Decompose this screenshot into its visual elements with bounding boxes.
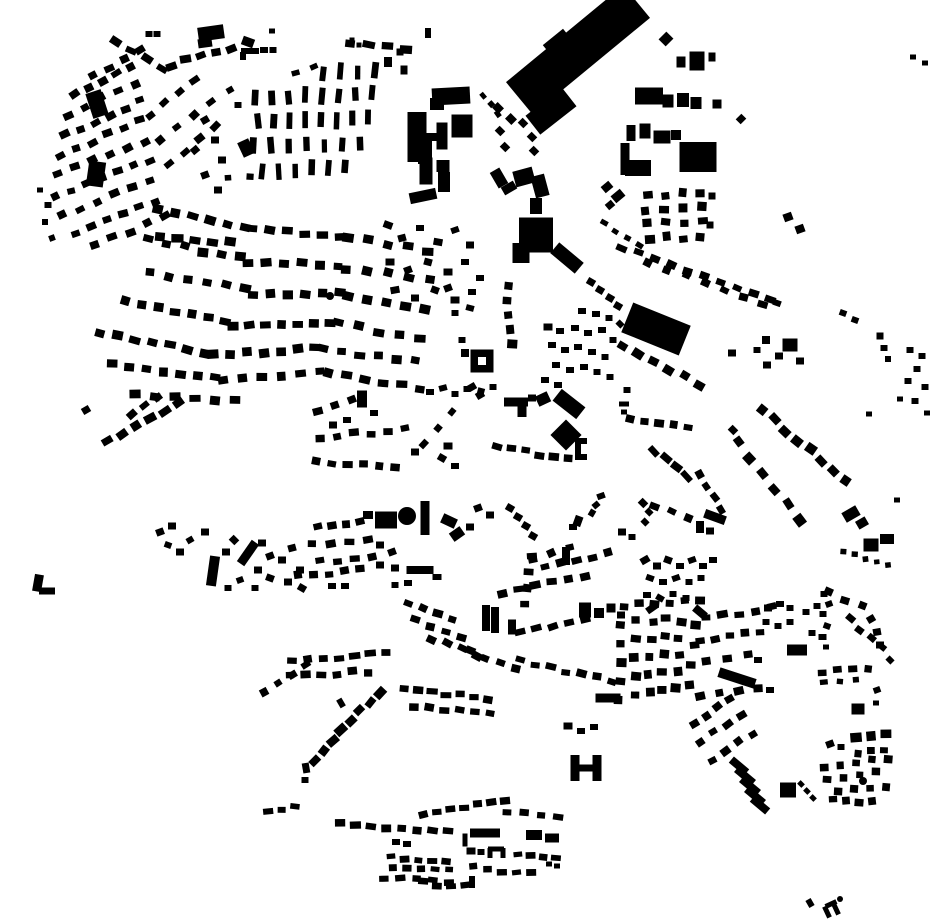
building: [576, 668, 588, 678]
building: [445, 866, 453, 872]
building: [565, 543, 574, 551]
building: [460, 881, 470, 888]
building: [428, 877, 438, 884]
building: [445, 805, 455, 812]
building: [513, 851, 522, 857]
building: [596, 492, 606, 500]
building: [270, 47, 277, 53]
building: [330, 401, 340, 411]
building: [339, 137, 346, 151]
building: [134, 115, 146, 124]
building: [713, 100, 722, 109]
building: [696, 521, 704, 533]
building: [834, 787, 843, 795]
building: [361, 295, 373, 306]
building: [143, 412, 158, 425]
building: [646, 688, 655, 697]
building: [488, 847, 504, 852]
building: [638, 498, 649, 509]
building: [187, 309, 197, 319]
building: [302, 762, 311, 773]
building: [690, 52, 705, 71]
building: [225, 350, 235, 359]
building: [452, 310, 459, 316]
building: [864, 539, 879, 552]
building: [359, 460, 368, 467]
building: [407, 566, 434, 574]
building: [564, 723, 573, 730]
building: [154, 31, 161, 37]
building: [211, 137, 219, 144]
building: [418, 877, 429, 884]
building: [814, 454, 827, 467]
building: [418, 810, 429, 819]
building: [277, 372, 286, 382]
building: [265, 551, 275, 560]
building: [347, 395, 357, 405]
building: [679, 203, 688, 212]
building: [586, 277, 596, 287]
building: [486, 798, 497, 806]
building: [185, 536, 194, 545]
building: [639, 555, 650, 566]
building: [867, 747, 875, 754]
building: [502, 297, 511, 305]
building: [381, 649, 390, 656]
building: [270, 114, 278, 129]
building: [839, 309, 848, 317]
building: [504, 311, 513, 319]
building: [775, 623, 782, 629]
building: [363, 511, 373, 519]
round-building: [326, 292, 334, 300]
building: [335, 819, 345, 827]
building: [222, 549, 230, 556]
building: [339, 566, 349, 575]
building: [355, 66, 360, 80]
building: [854, 799, 864, 807]
building: [319, 655, 328, 662]
building: [611, 228, 619, 236]
building: [81, 405, 91, 415]
building: [85, 221, 97, 231]
building: [409, 188, 438, 204]
building: [68, 88, 80, 100]
building: [803, 609, 810, 615]
building: [461, 349, 469, 357]
building: [89, 240, 100, 250]
building: [133, 202, 144, 211]
building: [87, 138, 99, 149]
building: [382, 42, 394, 50]
building: [355, 565, 365, 573]
building: [71, 144, 81, 153]
building: [368, 85, 375, 100]
building: [145, 110, 156, 120]
building: [607, 678, 617, 687]
building: [155, 527, 165, 536]
building: [216, 250, 227, 259]
building: [278, 807, 286, 813]
building: [439, 707, 449, 714]
building: [105, 149, 116, 159]
building: [575, 454, 587, 460]
building: [318, 289, 327, 298]
building: [715, 689, 724, 698]
building: [411, 449, 419, 456]
building: [140, 137, 151, 148]
building: [337, 62, 344, 80]
building: [296, 258, 308, 267]
round-building: [837, 896, 843, 902]
building: [528, 531, 538, 541]
building: [548, 342, 556, 348]
building: [349, 555, 359, 562]
building: [862, 556, 868, 562]
building: [872, 628, 881, 636]
building: [662, 364, 675, 377]
building: [410, 356, 420, 365]
building: [334, 655, 345, 662]
building: [874, 559, 880, 564]
building: [544, 324, 553, 331]
building: [140, 52, 154, 65]
building: [505, 503, 515, 513]
building: [673, 667, 682, 677]
building: [528, 395, 536, 402]
building: [708, 727, 718, 736]
building: [325, 539, 336, 548]
building: [643, 592, 651, 598]
building: [443, 283, 453, 292]
building: [390, 286, 400, 294]
building: [842, 796, 850, 804]
building: [695, 189, 704, 197]
building: [456, 691, 465, 698]
building: [129, 390, 140, 399]
building: [594, 369, 601, 375]
building: [506, 0, 650, 115]
building: [571, 755, 580, 781]
building: [328, 583, 336, 589]
building: [425, 634, 437, 645]
building: [390, 463, 400, 471]
building: [397, 234, 407, 243]
building: [657, 686, 666, 694]
building: [523, 568, 533, 575]
building: [478, 849, 485, 855]
building: [126, 182, 138, 192]
building: [211, 48, 221, 57]
building: [180, 147, 191, 158]
building: [273, 679, 282, 688]
building: [381, 297, 392, 307]
building: [701, 614, 710, 620]
building: [625, 160, 651, 176]
building: [221, 279, 232, 289]
building: [537, 812, 546, 819]
building: [690, 620, 701, 629]
building: [661, 218, 671, 226]
building: [466, 524, 474, 531]
building: [353, 320, 365, 331]
building: [427, 858, 437, 864]
building: [400, 45, 413, 54]
building: [39, 588, 55, 595]
building: [922, 384, 929, 390]
building: [200, 115, 210, 125]
building: [377, 379, 388, 387]
building: [392, 582, 399, 588]
building: [106, 232, 118, 242]
building: [248, 291, 258, 299]
building: [415, 385, 425, 394]
building: [756, 467, 769, 480]
building: [55, 151, 66, 161]
building: [399, 855, 409, 862]
building: [292, 164, 298, 178]
building: [676, 618, 687, 627]
building: [403, 599, 413, 608]
building: [736, 710, 748, 721]
building: [754, 657, 762, 663]
building: [336, 698, 346, 709]
building: [341, 370, 353, 379]
building: [403, 273, 415, 283]
building: [425, 28, 431, 38]
building: [619, 402, 629, 407]
building: [839, 474, 851, 487]
building: [181, 344, 194, 355]
building: [440, 692, 451, 698]
building: [839, 596, 850, 606]
building: [792, 513, 807, 528]
building: [76, 125, 86, 134]
building: [526, 852, 536, 859]
building: [209, 120, 221, 132]
building: [313, 522, 323, 530]
building: [592, 311, 600, 317]
building: [259, 687, 270, 698]
building: [519, 809, 529, 817]
building: [500, 797, 511, 805]
building: [724, 694, 735, 705]
building: [276, 347, 286, 356]
building: [417, 865, 425, 872]
building: [775, 353, 783, 360]
building: [677, 93, 689, 107]
building: [418, 439, 429, 450]
building: [620, 603, 629, 610]
building: [662, 231, 671, 241]
building: [763, 619, 770, 625]
building: [451, 463, 459, 469]
building: [689, 718, 701, 729]
figure-ground-map: [0, 0, 930, 924]
building: [587, 554, 598, 563]
building: [657, 668, 667, 676]
building: [119, 123, 129, 132]
building: [660, 632, 670, 640]
building: [329, 422, 337, 429]
building: [850, 732, 862, 742]
building: [145, 176, 155, 185]
building: [37, 188, 43, 193]
building: [680, 220, 688, 227]
building: [342, 461, 352, 468]
building: [600, 219, 609, 227]
building: [392, 839, 400, 845]
building: [154, 134, 166, 146]
building: [683, 424, 693, 431]
building: [318, 744, 330, 757]
building: [317, 231, 329, 238]
building: [571, 325, 579, 331]
building: [510, 664, 521, 674]
building: [693, 379, 706, 391]
building: [495, 126, 506, 137]
building: [618, 529, 626, 536]
building: [345, 39, 355, 47]
building: [577, 728, 585, 734]
building: [711, 701, 723, 712]
building: [490, 384, 497, 390]
building: [616, 658, 627, 667]
building: [130, 79, 141, 90]
building: [864, 665, 872, 673]
building: [430, 866, 439, 872]
building: [506, 325, 515, 335]
building: [851, 316, 860, 324]
building: [319, 66, 327, 81]
building: [466, 242, 474, 249]
building: [128, 160, 138, 170]
building: [640, 517, 649, 526]
building: [663, 555, 673, 564]
building: [452, 391, 459, 397]
building: [94, 328, 105, 338]
building: [768, 483, 781, 496]
building: [782, 212, 793, 223]
building: [743, 650, 753, 658]
building: [352, 87, 359, 101]
building: [611, 189, 626, 204]
building: [613, 301, 623, 311]
building: [561, 347, 569, 353]
building: [563, 574, 573, 583]
building: [594, 608, 604, 618]
building: [175, 370, 187, 379]
building: [465, 304, 474, 312]
building: [640, 418, 649, 426]
building: [853, 677, 860, 683]
building: [403, 841, 411, 847]
building: [333, 433, 342, 441]
building: [300, 670, 311, 678]
building: [694, 691, 705, 701]
building: [676, 563, 684, 569]
building: [179, 54, 191, 64]
building: [424, 703, 435, 712]
building: [661, 614, 671, 621]
building: [644, 670, 653, 679]
building: [469, 694, 478, 700]
building: [461, 259, 469, 265]
building: [290, 803, 300, 810]
building: [344, 714, 357, 727]
building: [924, 411, 930, 416]
building: [263, 808, 274, 815]
building: [183, 275, 193, 284]
building: [437, 453, 447, 463]
building: [432, 882, 442, 889]
building: [341, 583, 349, 589]
building: [605, 293, 615, 303]
building: [267, 137, 275, 154]
building: [455, 706, 465, 714]
building: [787, 619, 794, 625]
building: [643, 191, 653, 199]
building: [389, 864, 397, 871]
building: [382, 240, 393, 250]
building: [654, 131, 671, 144]
building: [409, 703, 419, 711]
building: [357, 137, 364, 151]
building: [113, 86, 124, 95]
building: [426, 688, 438, 695]
building: [414, 857, 422, 864]
building: [152, 204, 164, 215]
building: [756, 629, 765, 635]
building: [449, 526, 465, 542]
building: [627, 125, 636, 141]
building: [678, 188, 687, 198]
building: [443, 827, 454, 834]
building: [56, 209, 67, 220]
building: [309, 63, 318, 71]
building: [437, 160, 450, 172]
building: [659, 32, 674, 47]
building: [418, 603, 429, 613]
building: [642, 218, 652, 227]
building: [440, 513, 458, 528]
building: [456, 633, 467, 643]
building: [520, 601, 529, 608]
building: [373, 328, 385, 338]
building: [383, 428, 392, 435]
building: [249, 137, 257, 154]
building: [615, 243, 627, 253]
building: [630, 635, 641, 643]
building: [410, 614, 421, 623]
building: [163, 272, 174, 283]
building: [782, 497, 794, 510]
building: [230, 396, 241, 404]
building: [502, 809, 511, 815]
building: [790, 434, 804, 448]
building: [303, 137, 310, 151]
building: [48, 234, 56, 242]
building: [491, 607, 499, 633]
building: [733, 435, 745, 447]
building: [137, 300, 147, 309]
building: [809, 794, 817, 802]
building: [563, 618, 574, 626]
building: [361, 265, 373, 276]
building: [335, 88, 343, 103]
building: [497, 589, 508, 599]
building: [579, 765, 593, 772]
